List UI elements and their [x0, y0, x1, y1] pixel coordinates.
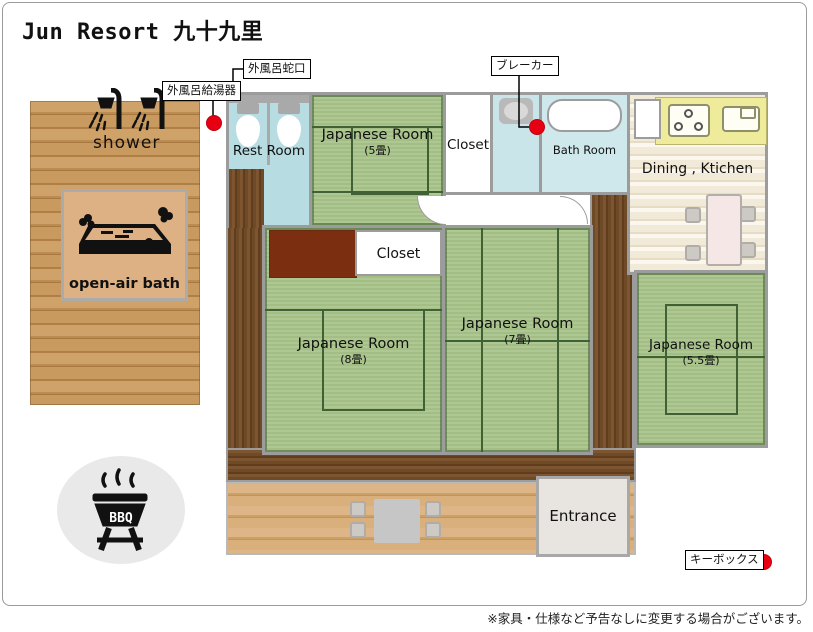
room-japanese-8: Closet Japanese Room (8畳) — [262, 225, 445, 455]
callout-outdoor-faucet: 外風呂蛇口 — [243, 59, 311, 79]
open-air-bath-panel: open-air bath — [61, 189, 188, 301]
deck-chair — [350, 501, 366, 517]
shower-label: shower — [93, 133, 160, 153]
dining-kitchen-label: Dining , Ktichen — [630, 161, 765, 177]
disclaimer-note: ※家具・仕様など予告なしに変更する場合がございます。 — [487, 608, 809, 627]
japanese-room-5-label: Japanese Room (5畳) — [312, 127, 443, 158]
stall-partition — [270, 95, 309, 103]
room-dining-kitchen: Dining , Ktichen — [627, 92, 768, 275]
bbq-area: BBQ — [57, 456, 185, 564]
japanese-room-5-5-label: Japanese Room (5.5畳) — [637, 337, 765, 368]
bath-room-label: Bath Room — [542, 143, 627, 157]
fridge-icon — [634, 99, 661, 139]
callout-outdoor-heater: 外風呂給湯器 — [162, 81, 241, 101]
stove-icon — [668, 104, 710, 137]
bbq-label: BBQ — [57, 511, 185, 526]
dining-table — [706, 194, 742, 266]
bathtub-icon — [547, 99, 622, 132]
callout-breaker: ブレーカー — [491, 56, 559, 76]
room-closet-middle: Closet — [355, 230, 442, 276]
japanese-room-7-label: Japanese Room (7畳) — [445, 316, 590, 347]
room-rest-room: Rest Room — [226, 92, 312, 228]
tokonoma-alcove — [269, 230, 357, 278]
page-title: Jun Resort 九十九里 — [22, 14, 263, 46]
deck-chair — [350, 522, 366, 538]
open-air-bath-icon — [71, 200, 179, 266]
toilet-icon — [234, 103, 262, 147]
toilet-icon — [275, 103, 303, 147]
sink-icon — [499, 98, 533, 124]
floor-plan-page: Jun Resort 九十九里 shower — [0, 0, 813, 632]
kitchen-counter — [655, 97, 767, 145]
dining-chair — [685, 207, 701, 223]
room-japanese-5-5: Japanese Room (5.5畳) — [634, 270, 768, 448]
dining-chair — [685, 245, 701, 261]
room-closet-top: Closet — [443, 92, 493, 195]
bbq-grill-icon — [57, 456, 185, 564]
closet-label: Closet — [446, 137, 490, 153]
kitchen-sink-icon — [722, 106, 760, 132]
open-air-bath-label: open-air bath — [64, 276, 185, 292]
japanese-room-8-label: Japanese Room (8畳) — [265, 336, 442, 367]
dining-chair — [740, 242, 756, 258]
room-bath: Bath Room — [539, 92, 630, 195]
room-entrance: Entrance — [536, 476, 630, 557]
closet-label: Closet — [357, 246, 440, 262]
engawa-patch — [229, 169, 264, 228]
callout-keybox: キーボックス — [685, 550, 764, 570]
dining-chair — [740, 206, 756, 222]
room-washroom — [490, 92, 542, 195]
deck-chair — [425, 501, 441, 517]
entrance-label: Entrance — [539, 507, 627, 525]
rest-room-label: Rest Room — [229, 143, 309, 159]
shower-icon — [84, 88, 174, 138]
deck-chair — [425, 522, 441, 538]
deck-table — [374, 499, 420, 543]
room-japanese-7: Japanese Room (7畳) — [442, 225, 593, 455]
